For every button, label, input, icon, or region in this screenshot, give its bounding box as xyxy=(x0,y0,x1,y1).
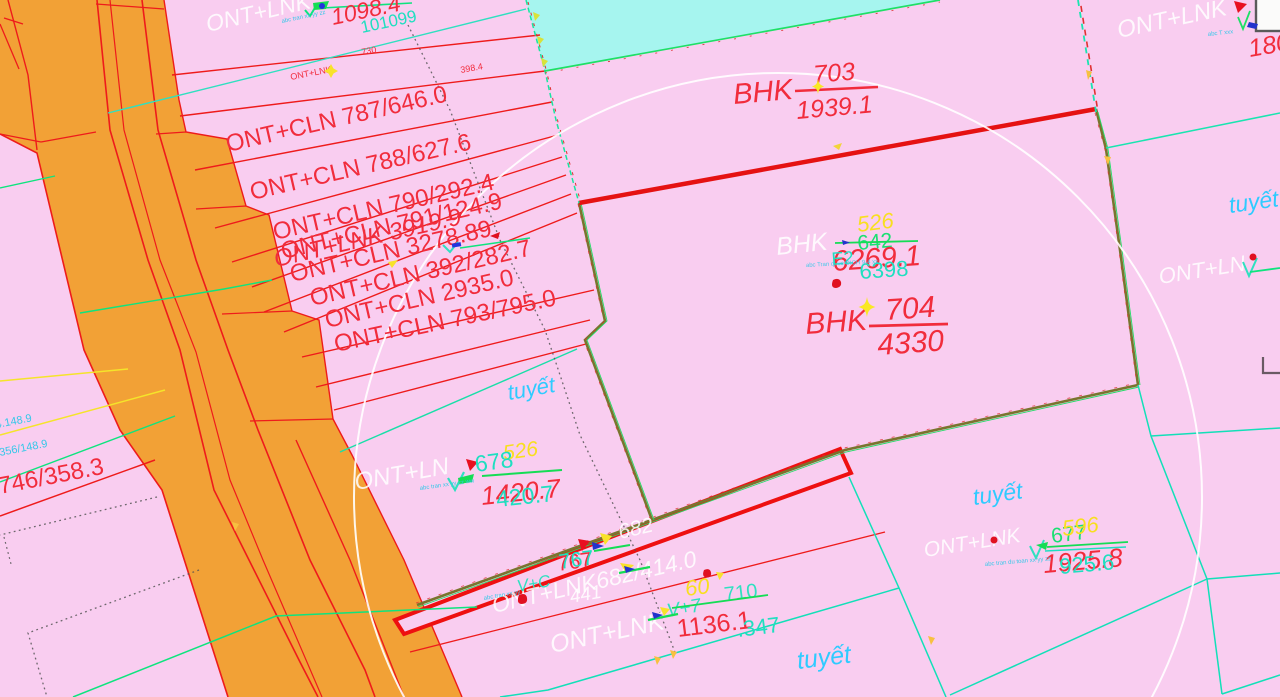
svg-text:925.6: 925.6 xyxy=(1058,549,1115,579)
svg-text:4330: 4330 xyxy=(876,324,945,362)
svg-text:BHK: BHK xyxy=(775,228,830,261)
svg-text:BHK: BHK xyxy=(804,304,870,341)
svg-text:767: 767 xyxy=(557,546,595,574)
svg-text:BHK: BHK xyxy=(732,74,796,111)
svg-text:710: 710 xyxy=(723,580,759,606)
svg-text:.347: .347 xyxy=(736,612,782,642)
svg-text:596: 596 xyxy=(1061,512,1101,541)
svg-text:60: 60 xyxy=(684,573,712,601)
svg-text:678: 678 xyxy=(473,446,515,477)
svg-text:704: 704 xyxy=(884,291,936,327)
